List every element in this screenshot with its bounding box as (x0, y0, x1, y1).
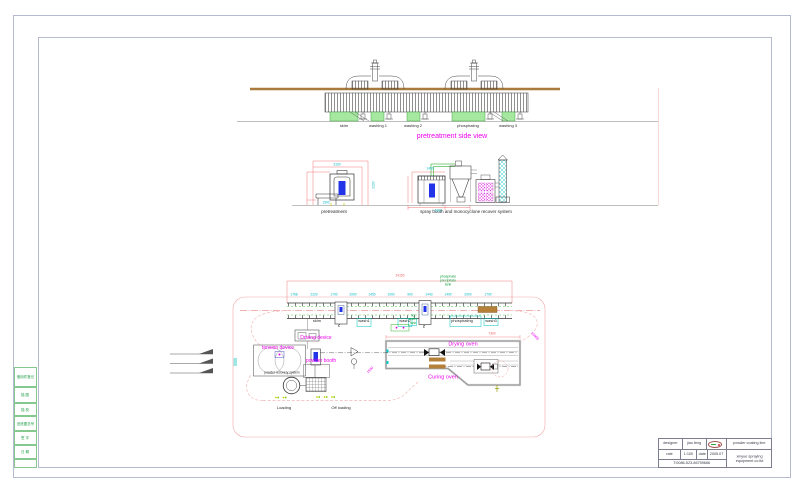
oven-dim-label: 7300 (488, 332, 495, 336)
cyclone (450, 161, 471, 202)
tank-label-washing2: washing 2 (404, 124, 422, 128)
plan-dim: 1000 (387, 293, 394, 297)
fan-motor-1 (424, 349, 445, 356)
tank-label-washing1: washing 1 (369, 124, 387, 128)
plan-dim: 1443 (425, 293, 432, 297)
dim-text: 1500 (322, 201, 329, 205)
margin-row-3: 描 校 (14, 403, 37, 416)
drawing-linework (0, 0, 800, 493)
workpiece-blue (339, 181, 346, 195)
company-logo-icon (708, 441, 722, 448)
powder-booth-label: powder booth (306, 358, 336, 364)
curing-oven-label: Curing oven (428, 374, 458, 380)
plan-dim: 1400 (444, 293, 451, 297)
side-view-group (237, 60, 658, 122)
offloading-label: Off loading (331, 406, 350, 410)
tension-device-label: tension device (262, 345, 294, 351)
exhaust-fan-unit-2 (445, 60, 503, 89)
heater-bar (478, 307, 497, 313)
margin-row-5: 签 字 (14, 431, 37, 445)
drying-oven-label: Drying oven (448, 341, 477, 347)
date-value: 2005.07 (710, 452, 724, 456)
dim-lines (307, 161, 368, 205)
designer-label: designer (663, 441, 677, 445)
fan-motor-2 (474, 360, 498, 374)
plan-dim: 2000 (464, 293, 471, 297)
tank-label-skim: skim (340, 124, 348, 128)
margin-row-1: 借用件登记 (14, 367, 37, 387)
plan-group (170, 281, 545, 437)
powder-recovery-plan (283, 365, 326, 394)
rate-value: 1:100 (684, 452, 693, 456)
dim-text: 4300 (434, 209, 441, 213)
product-title: powder coating line (733, 441, 765, 445)
tunnel-hatched-band (325, 93, 528, 112)
date-label: date (698, 452, 705, 456)
pretreatment-elevation-label: pretreatment (321, 209, 347, 214)
dim-text: 2200 (372, 181, 376, 188)
plan-dim: 1450 (368, 293, 375, 297)
station-phosphating: phosphating (451, 319, 473, 323)
loading-label: Loading (277, 406, 291, 410)
plan-dim: 2000 (349, 293, 356, 297)
rate-label: rate (666, 452, 672, 456)
station-wash3: wash3 (485, 319, 497, 323)
pretreatment-elevation (307, 161, 368, 206)
hot-water-note: hotwatertank (409, 314, 417, 325)
z-mark-2: Z (423, 325, 425, 329)
margin-row-empty (14, 459, 37, 468)
plan-dim: 1700 (330, 293, 337, 297)
spray-booth-elevation (408, 155, 510, 210)
tanks (330, 112, 515, 121)
overall-dim-line (287, 281, 512, 303)
plan-dim: 1700 (484, 293, 491, 297)
exhaust-fan-unit-1 (346, 60, 404, 89)
plan-overall-dim: 24150 (395, 274, 404, 278)
phosphate-note: phosphateprecipitatetank (440, 275, 456, 287)
side-view-title: pretreatment side view (417, 133, 487, 141)
designer-name: jiao feng (687, 441, 701, 445)
driving-device-label: Driving device (300, 335, 331, 341)
ovens (320, 335, 520, 392)
margin-row-6: 日 期 (14, 445, 37, 459)
loading-hooks (275, 396, 335, 398)
dim-text: 3100 (333, 163, 340, 167)
station-wash1: wash1 (358, 319, 370, 323)
oven-dim-line (386, 335, 520, 339)
flow-flag-icon (351, 348, 358, 357)
margin-row-2: 描 图 (14, 387, 37, 403)
drawing-sheet: pretreatment side view skim washing 1 wa… (0, 0, 800, 493)
tank-label-phosphating: phosphating (457, 124, 479, 128)
filter-unit (476, 175, 495, 203)
margin-row-4: 旧底图总号 (14, 416, 37, 431)
green-control-box (391, 325, 409, 332)
plan-dim: 2229 (310, 293, 317, 297)
station-skim: skim (313, 319, 321, 323)
entry-marker (234, 358, 238, 366)
company-name: xinyue sprayingequipment co.ltd (726, 449, 772, 468)
oven-rails (388, 348, 518, 366)
powder-recovery-label: powder recovery system (264, 371, 299, 375)
section-arrows (170, 349, 237, 373)
workpiece-blue (429, 184, 435, 198)
phone-number: T:0086-523-86759666 (674, 462, 711, 466)
plan-dim: 900 (407, 293, 412, 297)
z-mark-1: Z (338, 324, 340, 328)
exhaust-stack (496, 155, 510, 203)
burner-bar-1 (429, 358, 446, 362)
burner-bar-2 (429, 365, 446, 369)
plan-dim: 1768 (290, 293, 297, 297)
tank-label-washing3: washing 3 (499, 124, 517, 128)
dim-text: 1450 (426, 167, 433, 171)
